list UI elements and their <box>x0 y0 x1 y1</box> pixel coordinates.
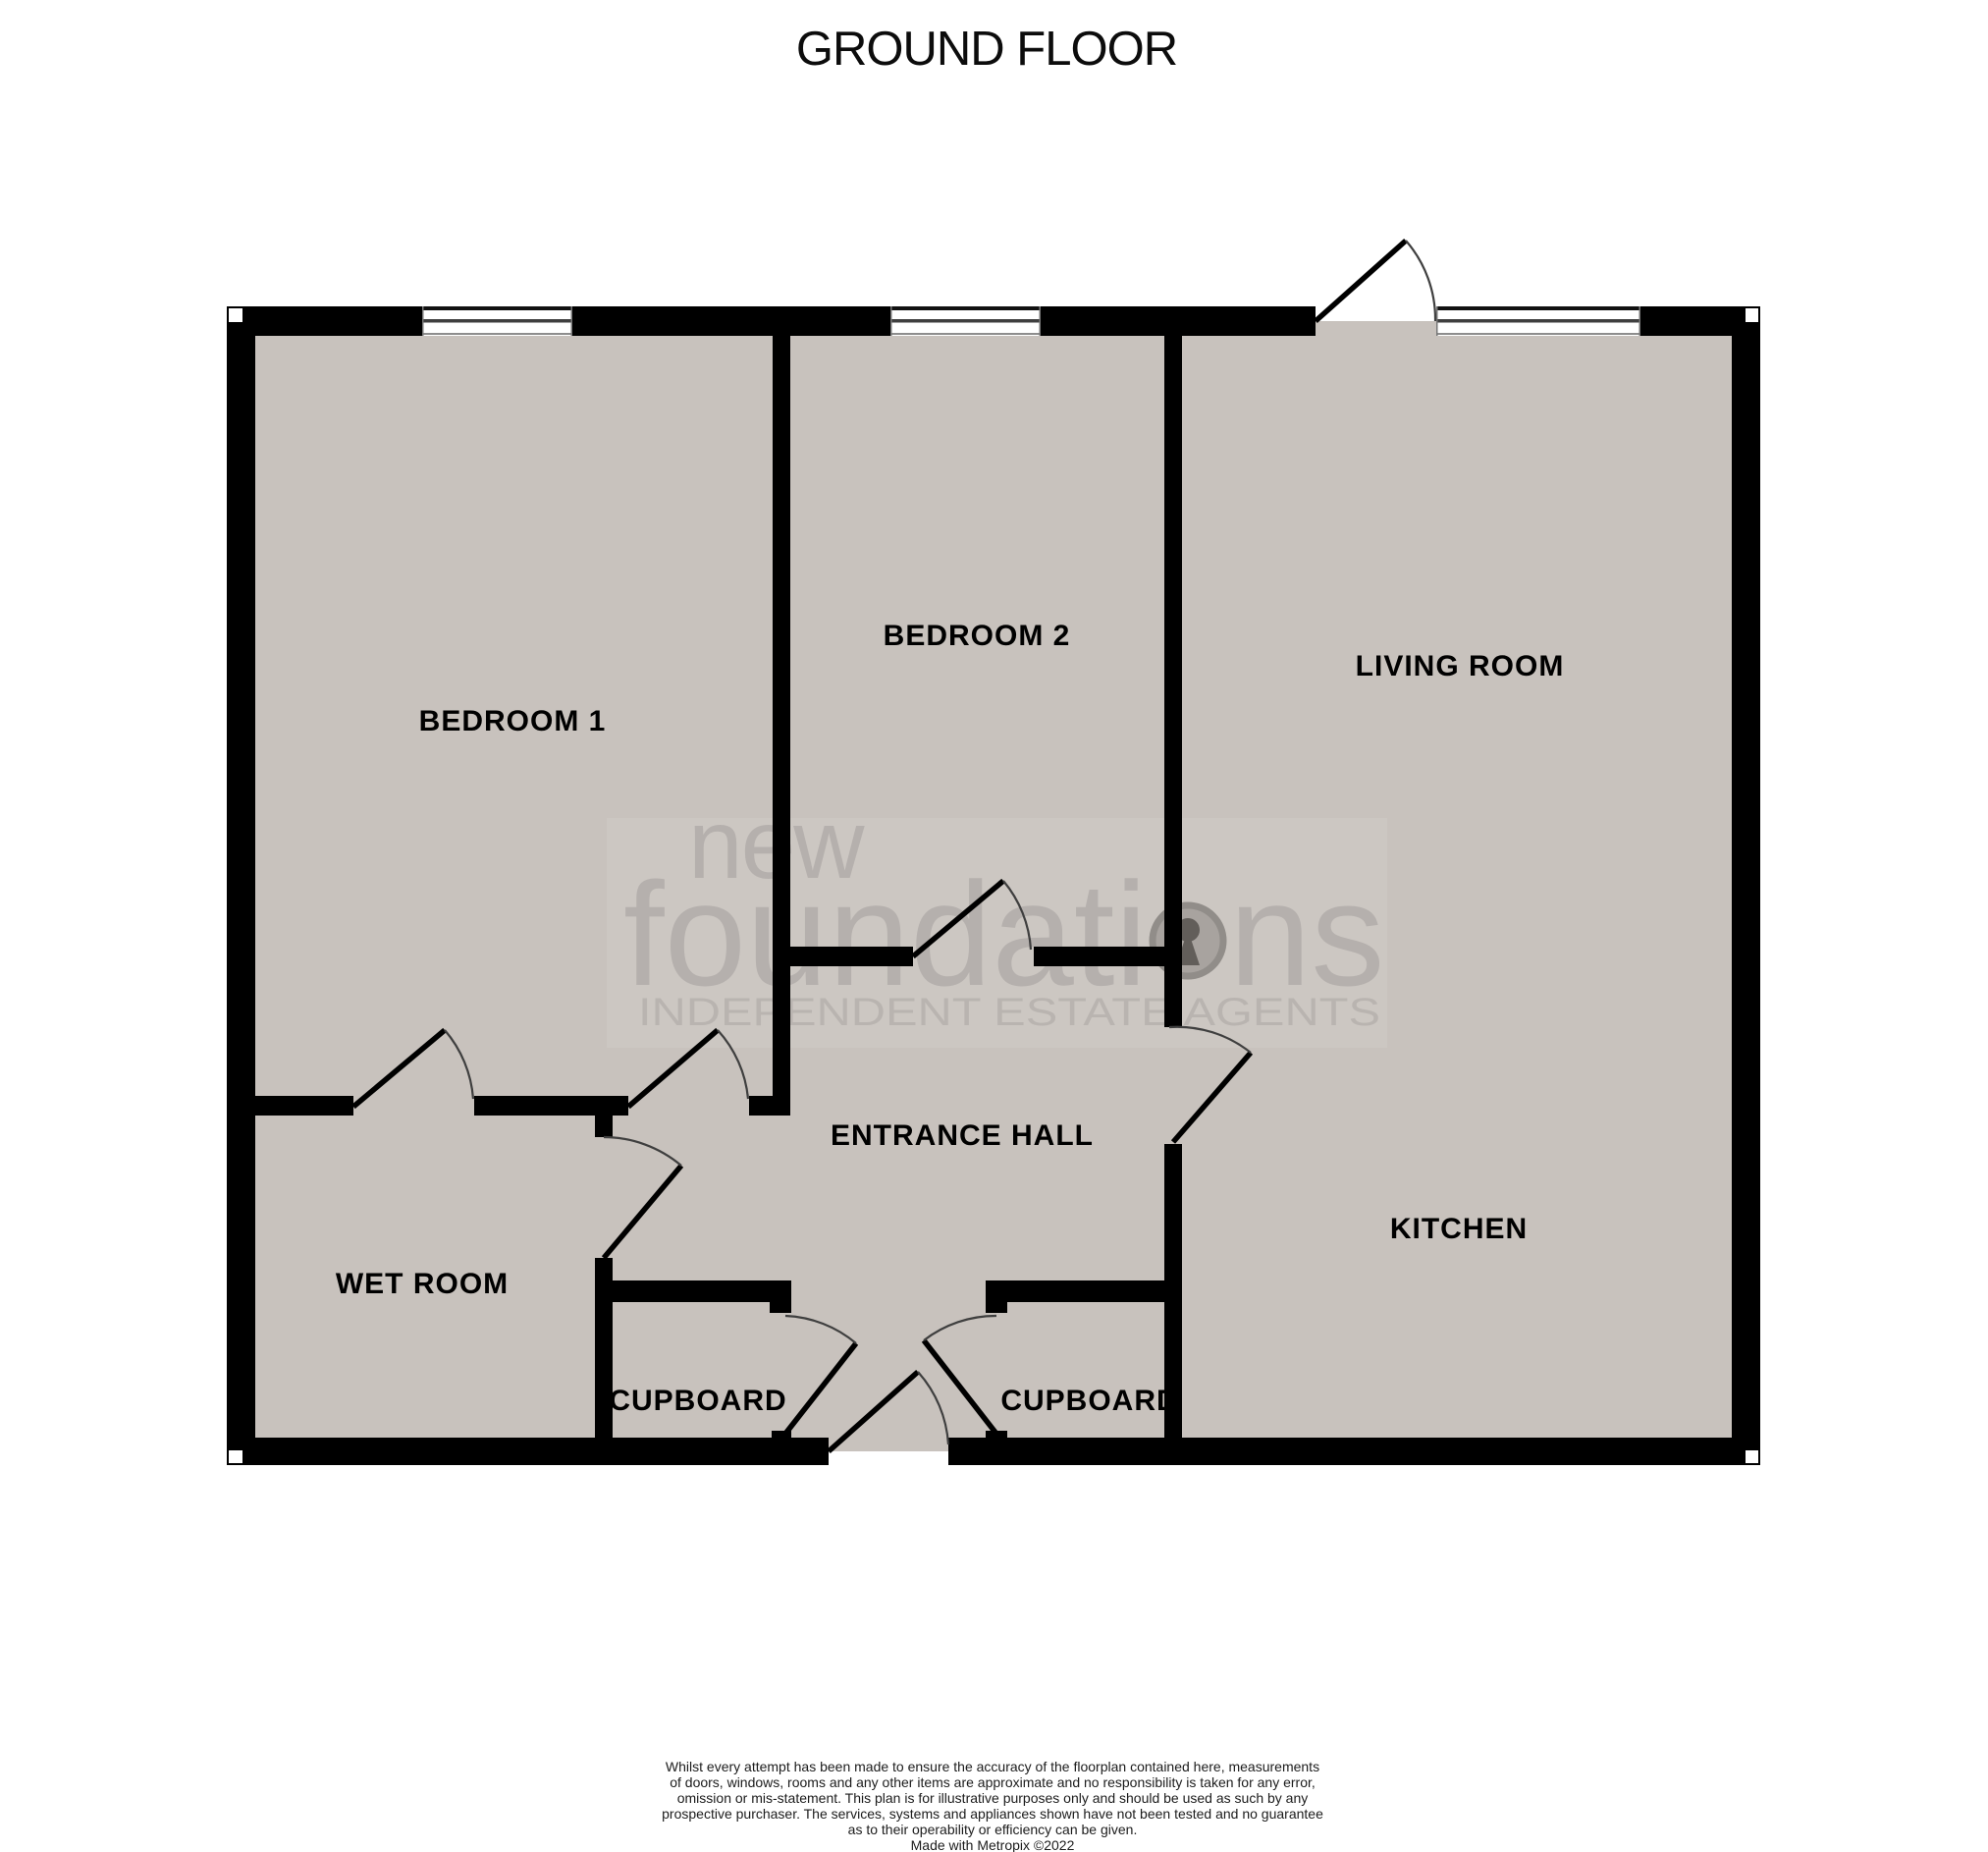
svg-text:Whilst every attempt has been: Whilst every attempt has been made to en… <box>666 1759 1319 1774</box>
svg-text:as to their operability or eff: as to their operability or efficiency ca… <box>848 1822 1138 1837</box>
svg-text:of doors, windows, rooms and a: of doors, windows, rooms and any other i… <box>670 1774 1316 1790</box>
svg-text:INDEPENDENT ESTATE AGENTS: INDEPENDENT ESTATE AGENTS <box>638 991 1380 1034</box>
svg-text:WET ROOM: WET ROOM <box>336 1268 509 1300</box>
svg-text:ENTRANCE HALL: ENTRANCE HALL <box>831 1119 1094 1152</box>
svg-text:prospective purchaser. The ser: prospective purchaser. The services, sys… <box>662 1806 1323 1822</box>
svg-text:Made with Metropix ©2022: Made with Metropix ©2022 <box>911 1837 1075 1852</box>
svg-text:KITCHEN: KITCHEN <box>1390 1213 1528 1245</box>
svg-text:GROUND FLOOR: GROUND FLOOR <box>796 23 1177 76</box>
svg-text:CUPBOARD: CUPBOARD <box>609 1385 786 1417</box>
svg-text:BEDROOM 1: BEDROOM 1 <box>419 705 607 737</box>
svg-text:BEDROOM 2: BEDROOM 2 <box>884 620 1071 652</box>
svg-text:omission or mis-statement. Thi: omission or mis-statement. This plan is … <box>677 1790 1309 1806</box>
svg-text:LIVING ROOM: LIVING ROOM <box>1356 650 1565 682</box>
svg-text:CUPBOARD: CUPBOARD <box>1000 1385 1178 1417</box>
